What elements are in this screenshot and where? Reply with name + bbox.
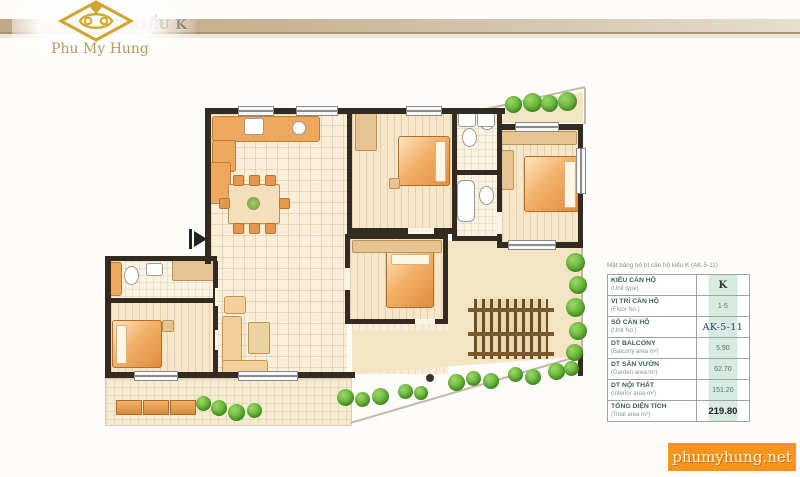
- planter-icon: [116, 400, 142, 415]
- bush-icon: [448, 374, 465, 391]
- wall: [345, 234, 448, 239]
- wall: [452, 170, 497, 175]
- bed-icon: [524, 156, 580, 212]
- bush-icon: [548, 363, 565, 380]
- table-row: DT NỘI THẤT (Interior area m²) 151.20: [608, 380, 749, 401]
- chair-icon: [233, 175, 244, 186]
- bush-icon: [247, 403, 262, 418]
- pergola-rail-top: [468, 308, 554, 312]
- window: [508, 240, 556, 250]
- logo-text: Phu My Hung: [51, 41, 149, 57]
- stove-icon: [244, 118, 264, 135]
- sink-icon: [146, 263, 163, 276]
- bush-icon: [541, 95, 558, 112]
- unit-no-value: AK-5-11: [703, 322, 744, 333]
- table-row: KIỂU CĂN HỘ (Unit type) K: [608, 275, 749, 296]
- wardrobe-icon: [501, 131, 577, 145]
- wall: [105, 298, 215, 303]
- washer-icon: [477, 112, 495, 127]
- garden-area-value: 62.70: [714, 366, 732, 373]
- window: [406, 106, 442, 116]
- boundary-dot: [426, 374, 434, 382]
- side-table-icon: [162, 320, 174, 332]
- bed-icon: [386, 250, 434, 308]
- wall: [443, 234, 448, 324]
- bush-icon: [483, 373, 499, 389]
- bush-icon: [466, 371, 481, 386]
- table-row: TỔNG DIỆN TÍCH (Total area m²) 219.80: [608, 401, 749, 422]
- table-centerpiece-icon: [247, 197, 260, 210]
- window: [238, 371, 298, 381]
- bush-icon: [337, 389, 354, 406]
- entrance-arrow-icon: [189, 229, 192, 249]
- side-table-icon: [389, 178, 400, 189]
- bush-icon: [564, 361, 579, 376]
- wall: [105, 256, 217, 261]
- table-row: SỐ CĂN HỘ (Unit No.) AK-5-11: [608, 317, 749, 338]
- door-gap: [345, 268, 350, 290]
- door-gap: [408, 228, 434, 234]
- table-row: DT SÂN VƯỜN (Garden area m²) 62.70: [608, 359, 749, 380]
- bush-icon: [372, 388, 389, 405]
- bush-icon: [566, 344, 583, 361]
- coffee-table-icon: [248, 322, 270, 354]
- watermark-link[interactable]: phumyhung.net: [668, 443, 796, 471]
- unit-info-table: KIỂU CĂN HỘ (Unit type) K VỊ TRÍ CĂN HỘ …: [607, 274, 750, 422]
- table-row: VỊ TRÍ CĂN HỘ (Floor No.) 1-5: [608, 296, 749, 317]
- bush-icon: [414, 386, 428, 400]
- door-gap: [215, 330, 218, 350]
- chair-icon: [249, 223, 260, 234]
- balcony-area-value: 5.90: [716, 345, 730, 352]
- planter-icon: [170, 400, 196, 415]
- chair-icon: [265, 175, 276, 186]
- wardrobe-icon: [352, 240, 442, 253]
- table-row: DT BALCONY (Balcony area m²) 5.90: [608, 338, 749, 359]
- bush-icon: [508, 367, 523, 382]
- pergola-rail-mid: [468, 332, 554, 336]
- logo-ornament-icon: Phu My Hung: [18, 0, 190, 58]
- window: [515, 122, 559, 132]
- interior-area-value: 151.20: [712, 387, 733, 394]
- kitchen-sink-icon: [292, 121, 306, 135]
- balcony-east-line: [584, 88, 586, 124]
- door-gap: [215, 288, 218, 306]
- window: [134, 371, 178, 381]
- total-area-value: 219.80: [708, 406, 737, 417]
- bed-icon: [112, 320, 162, 368]
- toilet-icon: [462, 128, 477, 147]
- window: [576, 148, 586, 194]
- pergola-rail-bottom: [468, 352, 554, 356]
- door-gap: [415, 319, 435, 324]
- armchair-icon: [224, 296, 246, 314]
- wall: [452, 236, 502, 241]
- phu-my-hung-logo: Phu My Hung: [18, 0, 190, 58]
- bush-icon: [228, 404, 245, 421]
- bush-icon: [523, 93, 542, 112]
- bush-icon: [398, 384, 413, 399]
- bush-icon: [211, 400, 227, 416]
- chair-icon: [279, 198, 290, 209]
- toilet-icon: [124, 266, 139, 285]
- bush-icon: [569, 322, 587, 340]
- chair-icon: [219, 198, 230, 209]
- planter-icon: [143, 400, 169, 415]
- bush-icon: [505, 96, 522, 113]
- wall: [213, 261, 218, 373]
- dresser-icon: [501, 150, 514, 190]
- floor-no-value: 1-5: [718, 303, 728, 310]
- window: [238, 106, 274, 116]
- bush-icon: [355, 392, 370, 407]
- bush-icon: [569, 276, 587, 294]
- window: [296, 106, 338, 116]
- door-gap: [497, 212, 502, 234]
- chair-icon: [265, 223, 276, 234]
- chair-icon: [233, 223, 244, 234]
- bush-icon: [196, 396, 211, 411]
- bush-icon: [525, 369, 541, 385]
- bush-icon: [566, 298, 585, 317]
- chair-icon: [249, 175, 260, 186]
- bush-icon: [558, 92, 577, 111]
- wall: [105, 256, 111, 378]
- unit-type-value: K: [719, 280, 728, 291]
- wall: [347, 108, 352, 234]
- bathtub-icon: [457, 180, 475, 222]
- plan-caption: Mặt bằng bố trí căn hộ kiểu K (AK-5-11): [607, 262, 749, 269]
- bed-icon: [398, 136, 450, 186]
- page: CĂN HỘ KIỂU K Phu My Hung: [0, 0, 800, 477]
- bush-icon: [566, 253, 585, 272]
- toilet-icon: [479, 186, 494, 205]
- washer-icon: [458, 112, 476, 127]
- entrance-arrow-icon: [194, 231, 207, 247]
- dresser-icon: [355, 113, 377, 151]
